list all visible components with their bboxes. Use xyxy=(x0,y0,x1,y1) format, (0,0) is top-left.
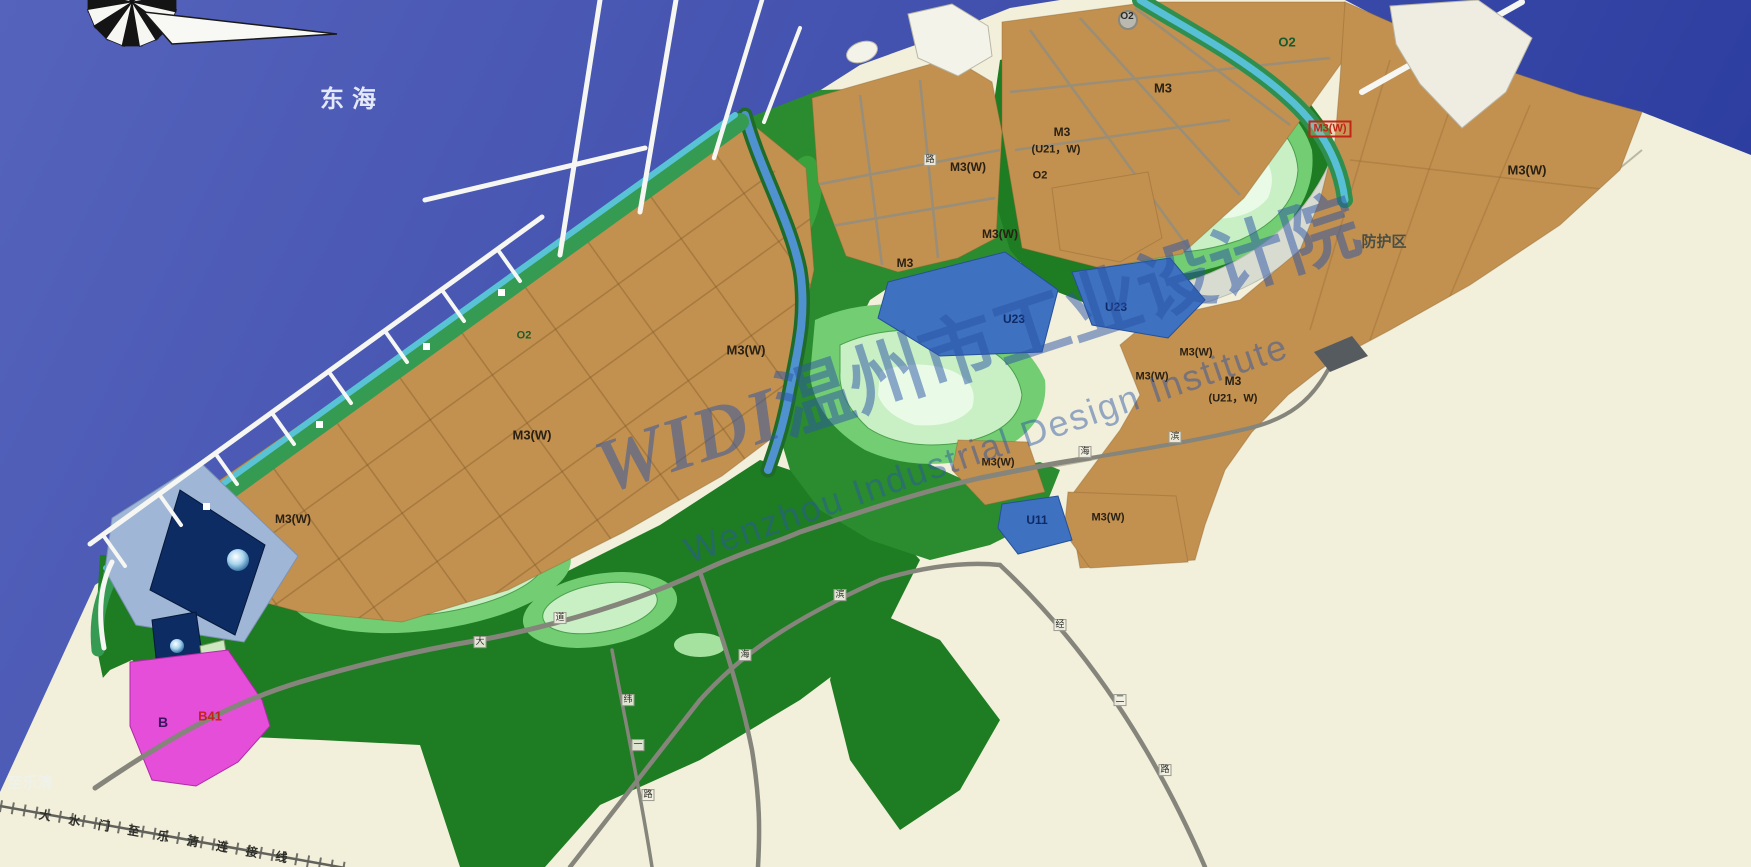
road-name-char: 海 xyxy=(738,649,751,661)
zone-m3-top: M3 xyxy=(1154,82,1172,95)
zone-u21w-stack: (U21，W) xyxy=(1032,145,1081,156)
zone-m3w-mid-b: M3(W) xyxy=(950,161,986,173)
road-name-char: 滨 xyxy=(1168,431,1181,443)
to-yueqing: 至乐清 xyxy=(7,776,52,791)
zone-o2-strip: O2 xyxy=(517,331,532,342)
zone-m3-u21-a: M3 xyxy=(1225,375,1242,387)
zone-u23-a: U23 xyxy=(1003,313,1025,325)
zone-m3-mid-a: M3 xyxy=(897,257,914,269)
zone-o2-canal: O2 xyxy=(1278,36,1295,49)
zone-m3-stack: M3 xyxy=(1054,126,1071,138)
zone-o2-roundabout: O2 xyxy=(1120,12,1133,22)
road-name-char: 路 xyxy=(641,789,654,801)
road-name-char: 二 xyxy=(1113,694,1126,706)
label-layer: 东海至乐清大水门至乐清连接线O2M3(W)M3(W)M3(W)M3M3(W)M3… xyxy=(0,0,1751,867)
zone-m3w-small-diamond: M3(W) xyxy=(982,458,1015,469)
zone-m3w-mid-a: M3(W) xyxy=(982,228,1018,240)
zone-m3w-red-boxed: M3(W) xyxy=(1309,121,1352,138)
zone-u23-b: U23 xyxy=(1105,301,1127,313)
zone-m3w-left-b: M3(W) xyxy=(727,344,766,357)
zone-m3w-s: M3(W) xyxy=(1092,513,1125,524)
zone-u11: U11 xyxy=(1026,514,1047,526)
road-name-char: 纬 xyxy=(621,694,634,706)
protection-zone: 防护区 xyxy=(1361,235,1406,250)
road-name-char: 道 xyxy=(553,612,566,624)
road-name-char: 滨 xyxy=(833,589,846,601)
zone-m3w-se-b: M3(W) xyxy=(1136,372,1169,383)
zone-o2-stack: O2 xyxy=(1033,171,1048,182)
railway-name: 大水门至乐清连接线 xyxy=(38,809,306,867)
road-name-char: 路 xyxy=(1158,764,1171,776)
road-name-char: 经 xyxy=(1053,619,1066,631)
road-name-char: 一 xyxy=(631,739,644,751)
zone-b41: B41 xyxy=(198,710,222,723)
zone-b: B xyxy=(158,715,168,729)
road-name-char: 海 xyxy=(1078,446,1091,458)
zone-m3w-east: M3(W) xyxy=(1508,164,1547,177)
sea-name: 东海 xyxy=(320,88,384,112)
zone-m3-u21-b: (U21，W) xyxy=(1209,394,1258,405)
zone-m3w-se-a: M3(W) xyxy=(1180,348,1213,359)
road-name-char: 路 xyxy=(923,154,936,166)
road-name-char: 大 xyxy=(473,636,486,648)
planning-map: 东海至乐清大水门至乐清连接线O2M3(W)M3(W)M3(W)M3M3(W)M3… xyxy=(0,0,1751,867)
zone-m3w-left-a: M3(W) xyxy=(513,429,552,442)
zone-m3w-left-c: M3(W) xyxy=(275,513,311,525)
